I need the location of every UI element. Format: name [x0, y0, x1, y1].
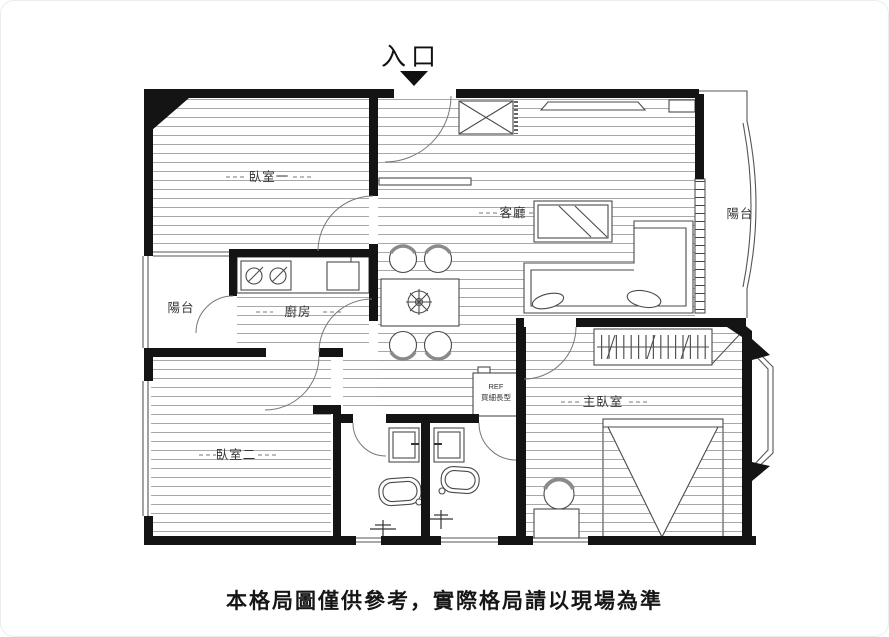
wall-left-upper: [144, 89, 153, 256]
bath-right-door-arc: [479, 423, 516, 460]
bed: [603, 419, 723, 539]
wall-living-south-a: [516, 318, 524, 327]
entrance-label: 入口: [381, 43, 441, 71]
living-room-label: 客廳: [499, 205, 526, 220]
entry-shelf: [541, 102, 645, 110]
wall-bottom-2: [381, 536, 441, 545]
wall-balcony-bottom: [144, 348, 266, 357]
bay-wedge-top: [752, 339, 770, 360]
wall-master-right: [742, 331, 752, 545]
wall-living-south-b: [576, 318, 746, 327]
toilet-left: [378, 477, 422, 507]
fridge: REF 買細長型: [473, 367, 519, 416]
entry-bench: [379, 178, 471, 185]
toilet-right-valve: [439, 488, 445, 494]
right-balcony-outer: [699, 91, 756, 318]
wall-balcony-right-upper: [695, 94, 704, 179]
wall-bottom-3: [498, 536, 533, 545]
wall-kitchen-right: [369, 249, 378, 321]
wall-kitchen-bottom-stub: [319, 348, 343, 357]
bedroom2-floor: [151, 358, 331, 534]
wall-master-left: [516, 327, 526, 545]
toilet-right: [440, 466, 480, 495]
bath-left-door-arc: [353, 423, 386, 456]
balcony-right-label: 陽台: [726, 206, 753, 221]
floor-drain-right: [429, 510, 453, 529]
disclaimer-caption: 本格局圖僅供參考，實際格局請以現場為準: [1, 585, 888, 615]
corner-unit: [669, 100, 695, 112]
bay-wedge-bottom: [752, 462, 770, 481]
wall-top-right: [456, 89, 699, 98]
right-balcony-inner: [743, 123, 751, 287]
fridge-cap: [478, 367, 490, 373]
wall-bath-top-a: [333, 414, 353, 423]
wall-bedroom2-right: [333, 405, 341, 545]
entrance-arrow-icon: [400, 71, 428, 86]
nightstand: [534, 509, 579, 538]
fridge-code-label: REF: [489, 382, 504, 391]
floorplan-page: 入口: [0, 0, 889, 637]
kitchen-label: 廚房: [284, 304, 311, 319]
stove: [241, 261, 291, 290]
floorplan-drawing: 入口: [1, 1, 889, 576]
wall-bath-top-b: [386, 414, 479, 423]
wall-kitchen-left: [229, 249, 237, 296]
wall-bottom-4: [588, 536, 756, 545]
wall-kitchen-top: [229, 249, 377, 257]
bay-window-inner: [752, 352, 768, 467]
kitchen-fixtures: [237, 255, 369, 293]
wall-bottom-1: [144, 536, 356, 545]
kitchen-sink: [327, 262, 359, 290]
bedroom2-label: 臥室二: [216, 447, 257, 462]
balcony-left-label: 陽台: [167, 300, 194, 315]
bedroom1-label: 臥室一: [249, 169, 290, 184]
master-bedroom-label: 主臥室: [583, 394, 624, 409]
wall-bedroom1-right: [369, 94, 378, 196]
bay-window-outer: [752, 346, 773, 473]
wall-bath-divider: [421, 414, 430, 545]
tv-cabinet: [534, 201, 612, 242]
fridge-note-label: 買細長型: [481, 392, 511, 402]
wall-top-left: [144, 89, 394, 98]
balcony-door-arc: [196, 296, 233, 333]
